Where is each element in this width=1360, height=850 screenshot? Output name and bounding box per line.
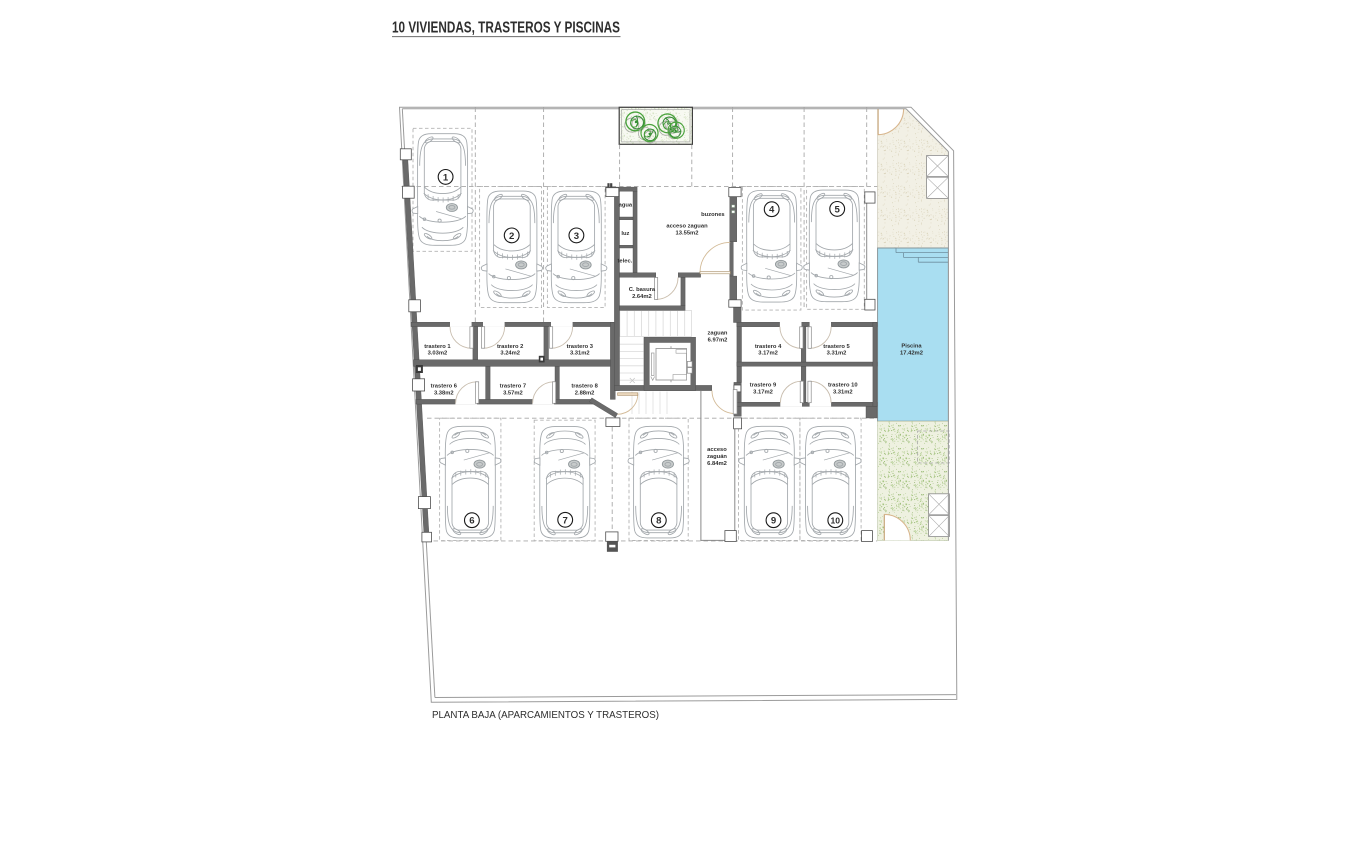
svg-text:trastero 7: trastero 7 bbox=[500, 383, 526, 389]
svg-text:PLANTA BAJA (APARCAMIENTOS Y T: PLANTA BAJA (APARCAMIENTOS Y TRASTEROS) bbox=[432, 710, 659, 721]
svg-text:3.57m2: 3.57m2 bbox=[503, 390, 523, 396]
svg-text:buzones: buzones bbox=[701, 212, 725, 218]
svg-text:10 VIVIENDAS, TRASTEROS Y PISC: 10 VIVIENDAS, TRASTEROS Y PISCINAS bbox=[392, 20, 620, 37]
svg-text:agua: agua bbox=[619, 203, 633, 209]
svg-text:3.31m2: 3.31m2 bbox=[833, 390, 853, 396]
svg-text:6.84m2: 6.84m2 bbox=[707, 461, 727, 467]
svg-text:6: 6 bbox=[469, 516, 474, 527]
svg-text:2.88m2: 2.88m2 bbox=[575, 390, 595, 396]
svg-text:trastero 5: trastero 5 bbox=[823, 344, 850, 350]
svg-text:3.03m2: 3.03m2 bbox=[428, 351, 448, 357]
svg-text:2: 2 bbox=[509, 231, 514, 242]
svg-text:acceso zaguan: acceso zaguan bbox=[666, 224, 708, 230]
svg-text:trastero 6: trastero 6 bbox=[431, 383, 458, 389]
svg-text:3.31m2: 3.31m2 bbox=[827, 351, 847, 357]
svg-text:telec.: telec. bbox=[617, 259, 632, 265]
svg-text:zaguán: zaguán bbox=[707, 454, 727, 460]
svg-text:C. basura: C. basura bbox=[629, 287, 656, 293]
svg-text:4: 4 bbox=[769, 205, 775, 216]
svg-text:trastero 4: trastero 4 bbox=[755, 344, 782, 350]
svg-text:trastero 8: trastero 8 bbox=[571, 383, 598, 389]
svg-text:trastero 10: trastero 10 bbox=[828, 383, 858, 389]
svg-text:luz: luz bbox=[621, 231, 629, 237]
svg-text:2.64m2: 2.64m2 bbox=[632, 294, 652, 300]
svg-text:7: 7 bbox=[563, 515, 568, 526]
svg-text:3.17m2: 3.17m2 bbox=[753, 390, 773, 396]
svg-text:3.24m2: 3.24m2 bbox=[500, 351, 520, 357]
svg-text:trastero 9: trastero 9 bbox=[750, 383, 777, 389]
svg-text:6.97m2: 6.97m2 bbox=[708, 337, 728, 343]
svg-text:17.42m2: 17.42m2 bbox=[900, 351, 923, 357]
svg-text:3.31m2: 3.31m2 bbox=[570, 351, 590, 357]
svg-text:zaguan: zaguan bbox=[708, 330, 728, 336]
svg-text:3: 3 bbox=[574, 231, 579, 242]
svg-text:5: 5 bbox=[835, 204, 841, 215]
svg-text:13.55m2: 13.55m2 bbox=[676, 231, 699, 237]
svg-text:8: 8 bbox=[656, 516, 662, 527]
svg-text:trastero 1: trastero 1 bbox=[424, 344, 451, 350]
svg-text:3.17m2: 3.17m2 bbox=[758, 351, 778, 357]
svg-text:9: 9 bbox=[771, 516, 776, 527]
svg-text:3.38m2: 3.38m2 bbox=[434, 390, 454, 396]
svg-text:10: 10 bbox=[831, 515, 841, 525]
svg-text:1: 1 bbox=[443, 172, 449, 183]
svg-text:Piscina: Piscina bbox=[901, 344, 922, 350]
svg-text:trastero 2: trastero 2 bbox=[497, 344, 523, 350]
svg-text:trastero 3: trastero 3 bbox=[567, 344, 594, 350]
svg-text:acceso: acceso bbox=[707, 447, 727, 453]
